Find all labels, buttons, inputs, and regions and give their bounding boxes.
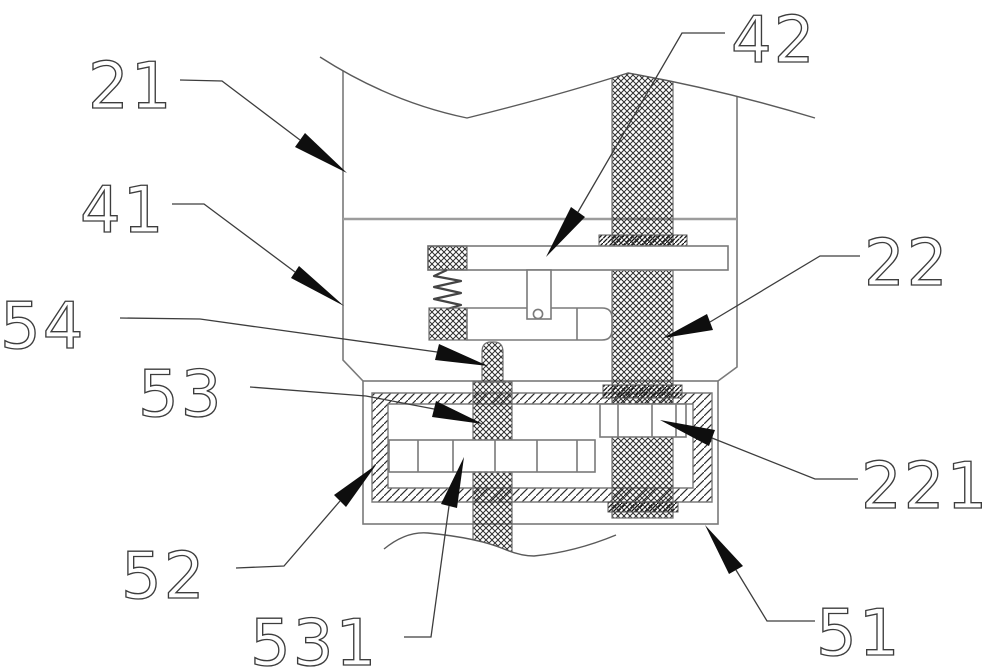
rack-531	[389, 440, 595, 472]
label-221: 221	[861, 450, 989, 524]
housing-right-wall	[718, 96, 737, 381]
spring-seat-upper	[428, 246, 467, 270]
collar-middle	[603, 385, 682, 398]
rack-body	[389, 440, 595, 472]
label-42: 42	[731, 4, 816, 78]
shaft-neck-54	[482, 342, 503, 382]
collar-upper	[599, 235, 687, 246]
leader-54	[120, 318, 437, 352]
gear-221	[600, 404, 686, 437]
label-41: 41	[80, 174, 165, 248]
label-54: 54	[0, 290, 85, 364]
label-21: 21	[88, 50, 173, 124]
housing-left-wall	[343, 71, 363, 381]
gear-body	[600, 404, 686, 437]
leader-52	[236, 501, 340, 568]
collar-lower	[608, 502, 678, 512]
label-531: 531	[250, 607, 378, 672]
label-52: 52	[121, 540, 206, 614]
label-22: 22	[864, 227, 949, 301]
arrowhead-21	[295, 133, 347, 173]
label-53: 53	[138, 358, 223, 432]
leader-22	[710, 256, 860, 322]
arrowhead-54	[435, 344, 488, 366]
arrowhead-51	[705, 525, 743, 574]
plate-42	[428, 246, 728, 270]
spring	[434, 270, 461, 309]
leader-21	[180, 80, 300, 140]
label-51: 51	[816, 597, 901, 671]
arrowhead-41	[291, 266, 344, 306]
leader-221	[712, 438, 858, 479]
pivot-pin	[533, 309, 542, 318]
patent-figure: 21 41 54 53 52 531 42 22 221 51	[0, 0, 1000, 672]
drawing-canvas: 21 41 54 53 52 531 42 22 221 51	[0, 0, 1000, 672]
leader-41	[172, 204, 295, 272]
spring-seat-lower	[429, 308, 467, 340]
leader-51	[736, 570, 815, 621]
